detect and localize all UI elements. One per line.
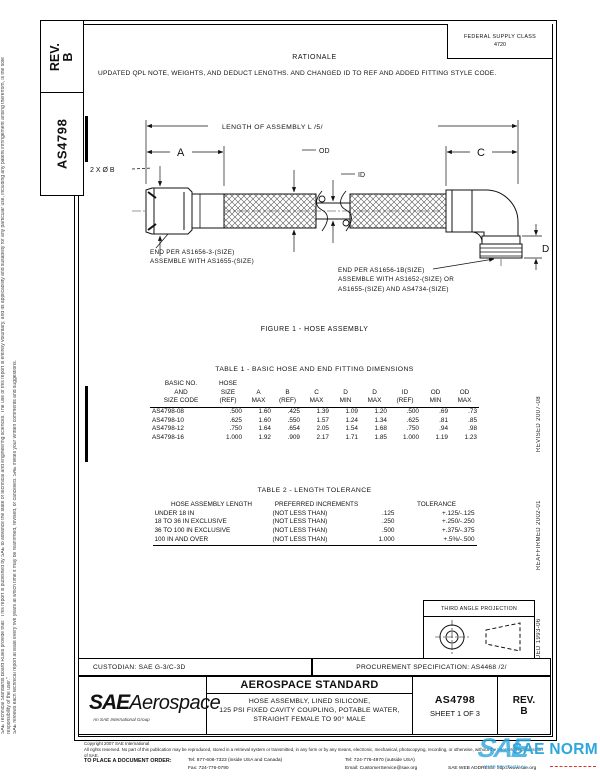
left-end-note: END PER AS1656-3-(SIZE) ASSEMBLE WITH AS… <box>150 248 340 267</box>
table-cell: (NOT LESS THAN) <box>271 518 363 527</box>
doc-number: AS4798 <box>435 694 475 706</box>
document-title: HOSE ASSEMBLY, LINED SILICONE, 125 PSI F… <box>207 694 412 725</box>
left-ferrule <box>192 194 224 228</box>
table-header-cell: SIZE <box>212 389 244 398</box>
reaffirmed-date: REAFFIRMED 2002-01 <box>536 460 542 570</box>
table-cell: .625 <box>212 417 244 426</box>
table-row: 100 IN AND OVER(NOT LESS THAN)1.000+.5%/… <box>153 536 477 546</box>
table-row: AS4798-08.5001.60.4251.391.091.20.500.69… <box>150 407 479 416</box>
table2-title: TABLE 2 - LENGTH TOLERANCE <box>78 487 551 494</box>
doc-number-cell: AS4798 SHEET 1 OF 3 <box>413 677 498 734</box>
table-header-cell: AND <box>150 389 212 398</box>
table-header-cell: MIN <box>331 397 360 407</box>
order-label: TO PLACE A DOCUMENT ORDER: <box>84 758 172 764</box>
table-header-cell: MAX <box>244 397 273 407</box>
rev-box-value: B <box>62 43 75 71</box>
copyright-line: Copyright 2007 SAE International <box>84 741 149 747</box>
table-cell: .81 <box>421 417 450 426</box>
table-header-cell: MAX <box>360 397 389 407</box>
table-row: AS4798-12.7501.64.6542.051.541.68.750.94… <box>150 425 479 434</box>
right-end-note: END PER AS1656-1B(SIZE) ASSEMBLE WITH AS… <box>338 266 543 294</box>
sae-logo-cell: SAEAerospace An SAE International Group <box>79 677 207 734</box>
table-cell: .654 <box>273 425 302 434</box>
table-cell: 1.60 <box>244 407 273 416</box>
logo-subtitle: An SAE International Group <box>93 717 150 722</box>
table-row: AS4798-161.0001.92.9092.171.711.851.0001… <box>150 434 479 443</box>
table-header-cell <box>360 380 389 389</box>
table-header-cell: D <box>331 389 360 398</box>
table-header-cell: (REF) <box>212 397 244 407</box>
watermark-red-rule <box>550 766 596 767</box>
table-header-cell: BASIC NO. <box>150 380 212 389</box>
table-cell: 1.23 <box>450 434 479 443</box>
custodian-cell: CUSTODIAN: SAE G-3/C-3D <box>78 658 312 676</box>
table-header-row: SIZE CODE(REF)MAX(REF)MAXMINMAX(REF)MINM… <box>150 397 479 407</box>
table-cell: 2.17 <box>302 434 331 443</box>
table-cell: 1.68 <box>360 425 389 434</box>
doc-number-side: AS4798 <box>55 119 69 170</box>
braided-hose-right <box>350 194 446 228</box>
table-header-cell: (REF) <box>273 397 302 407</box>
rationale-body: UPDATED QPL NOTE, WEIGHTS, AND DEDUCT LE… <box>98 69 544 78</box>
table-header-cell <box>421 380 450 389</box>
table-row: 18 TO 36 IN EXCLUSIVE(NOT LESS THAN).250… <box>153 518 477 527</box>
table1-title: TABLE 1 - BASIC HOSE AND END FITTING DIM… <box>78 366 551 373</box>
elbow-fitting <box>446 190 522 258</box>
table-cell: 1.60 <box>244 417 273 426</box>
left-note-leader <box>156 234 168 248</box>
table-cell: .85 <box>450 417 479 426</box>
email-address: Email: CustomerService@sae.org <box>345 766 417 771</box>
standard-type: AEROSPACE STANDARD <box>207 677 412 694</box>
table-row: AS4798-10.6251.60.5501.571.241.34.625.81… <box>150 417 479 426</box>
table-cell: .750 <box>389 425 421 434</box>
table-cell: +.250/-.250 <box>397 518 477 527</box>
table1: BASIC NO.HOSEANDSIZEABCDDIDODODSIZE CODE… <box>150 380 479 442</box>
table-header-cell <box>244 380 273 389</box>
dim-a-label: A <box>177 147 185 159</box>
figure-caption: FIGURE 1 - HOSE ASSEMBLY <box>78 326 551 333</box>
projection-box: THIRD ANGLE PROJECTION <box>423 600 535 660</box>
table-header-cell: D <box>360 389 389 398</box>
table-cell: UNDER 18 IN <box>153 510 271 519</box>
table-cell: 1.000 <box>389 434 421 443</box>
table-cell: AS4798-12 <box>150 425 212 434</box>
web-address: SAE WEB ADDRESS: http://www.sae.org <box>448 766 536 771</box>
table-cell: 1.64 <box>244 425 273 434</box>
table-cell: .550 <box>273 417 302 426</box>
fsc-box: FEDERAL SUPPLY CLASS 4720 <box>447 24 552 59</box>
table-cell: .909 <box>273 434 302 443</box>
table-header-cell: A <box>244 389 273 398</box>
table-cell: 100 IN AND OVER <box>153 536 271 546</box>
dim-d-label: D <box>542 244 549 255</box>
standard-title-cell: AEROSPACE STANDARD HOSE ASSEMBLY, LINED … <box>207 677 413 734</box>
table-cell: (NOT LESS THAN) <box>271 510 363 519</box>
table1-header: BASIC NO.HOSEANDSIZEABCDDIDODODSIZE CODE… <box>150 380 479 407</box>
dim-a-lines <box>147 146 224 186</box>
table2-header: HOSE ASSEMBLY LENGTHPREFERRED INCREMENTS… <box>153 501 477 510</box>
table-cell: 1.71 <box>331 434 360 443</box>
rev-box: REV. B <box>40 20 84 94</box>
table-cell: 1.20 <box>360 407 389 416</box>
document-page: { "page": { "margin_left_outer": "SAE Te… <box>0 0 600 776</box>
dim-c-label: C <box>477 147 485 159</box>
table-cell: .425 <box>273 407 302 416</box>
rev-cell-value: B <box>520 706 527 717</box>
table-cell: 2.05 <box>302 425 331 434</box>
table-header-row: ANDSIZEABCDDIDODOD <box>150 389 479 398</box>
table-cell: 1.09 <box>331 407 360 416</box>
table-cell: .125 <box>363 510 397 519</box>
table-cell: 1.39 <box>302 407 331 416</box>
table-header-cell: ID <box>389 389 421 398</box>
table-cell: .500 <box>389 407 421 416</box>
table-cell: +.375/-.375 <box>397 527 477 536</box>
doc-number-side-box: AS4798 <box>40 92 84 196</box>
dim-id-label: ID <box>358 172 365 179</box>
table-cell: .625 <box>389 417 421 426</box>
fax-number: Fax: 724-776-0790 <box>188 766 229 771</box>
table-cell: +.125/-.125 <box>397 510 477 519</box>
left-fitting-nut <box>146 188 192 234</box>
table2-body: UNDER 18 IN(NOT LESS THAN).125+.125/-.12… <box>153 510 477 546</box>
fsc-code: 4720 <box>494 42 506 48</box>
table-cell: .69 <box>421 407 450 416</box>
table-cell: .98 <box>450 425 479 434</box>
table-header-cell <box>389 380 421 389</box>
table-cell: 1.92 <box>244 434 273 443</box>
table-header-cell: MAX <box>302 397 331 407</box>
table-cell: 36 TO 100 IN EXCLUSIVE <box>153 527 271 536</box>
dim-od-label: OD <box>319 148 330 155</box>
custodian-text: CUSTODIAN: SAE G-3/C-3D <box>93 664 186 671</box>
table-cell: 1.000 <box>212 434 244 443</box>
table-header-row: HOSE ASSEMBLY LENGTHPREFERRED INCREMENTS… <box>153 501 477 510</box>
table-header-cell <box>450 380 479 389</box>
third-angle-projection-symbol <box>424 617 532 657</box>
procurement-cell: PROCUREMENT SPECIFICATION: AS4468 /2/ <box>312 658 551 676</box>
table-header-cell: OD <box>421 389 450 398</box>
projection-label: THIRD ANGLE PROJECTION <box>424 601 534 617</box>
dim-d-lines <box>522 224 542 270</box>
table-header-cell <box>273 380 302 389</box>
table-cell: .94 <box>421 425 450 434</box>
table-row: 36 TO 100 IN EXCLUSIVE(NOT LESS THAN).50… <box>153 527 477 536</box>
table-cell: .73 <box>450 407 479 416</box>
table-cell: 1.54 <box>331 425 360 434</box>
table-header-cell: B <box>273 389 302 398</box>
table-cell: .500 <box>363 527 397 536</box>
tel-inside: Tel: 877-606-7323 (inside USA and Canada… <box>188 758 282 763</box>
table-header-cell: HOSE <box>212 380 244 389</box>
table-cell: +.5%/-.500 <box>397 536 477 546</box>
title-block: SAEAerospace An SAE International Group … <box>78 676 551 735</box>
table-cell: 1.34 <box>360 417 389 426</box>
table-cell: 1.85 <box>360 434 389 443</box>
logo-sae-text: SAE <box>89 691 129 714</box>
sae-aerospace-logo: SAEAerospace <box>89 691 220 715</box>
table-cell: AS4798-08 <box>150 407 212 416</box>
fsc-title: FEDERAL SUPPLY CLASS <box>464 34 536 40</box>
table-cell: (NOT LESS THAN) <box>271 536 363 546</box>
length-dimension-label: LENGTH OF ASSEMBLY L /5/ <box>222 124 323 131</box>
braided-hose-left <box>224 194 316 228</box>
table-cell: .250 <box>363 518 397 527</box>
table-header-cell <box>302 380 331 389</box>
table2-wrap: HOSE ASSEMBLY LENGTHPREFERRED INCREMENTS… <box>78 501 551 546</box>
table2: HOSE ASSEMBLY LENGTHPREFERRED INCREMENTS… <box>153 501 477 546</box>
table-header-cell: PREFERRED INCREMENTS <box>271 501 363 510</box>
rev-cell-label: REV. <box>513 695 535 706</box>
table-header-cell <box>331 380 360 389</box>
left-margin-legal-text-outer: SAE Technical Standards Board Rules prov… <box>1 32 11 734</box>
table-header-row: BASIC NO.HOSE <box>150 380 479 389</box>
procurement-text: PROCUREMENT SPECIFICATION: AS4468 /2/ <box>356 664 506 671</box>
table-header-cell <box>363 501 397 510</box>
table-cell: 1.19 <box>421 434 450 443</box>
revised-date: REVISED 2007-08 <box>536 356 542 452</box>
tel-outside: Tel: 724-776-4970 (outside USA) <box>345 758 415 763</box>
table-cell: 1.24 <box>331 417 360 426</box>
table-header-cell: (REF) <box>389 397 421 407</box>
dim-b-label: 2 X Ø B <box>90 167 115 174</box>
table-cell: AS4798-16 <box>150 434 212 443</box>
table-header-cell: TOLERANCE <box>397 501 477 510</box>
table-cell: 1.000 <box>363 536 397 546</box>
left-margin-legal-text-inner: SAE reviews each technical report at lea… <box>13 32 23 734</box>
sheet-number: SHEET 1 OF 3 <box>430 709 480 718</box>
table1-wrap: BASIC NO.HOSEANDSIZEABCDDIDODODSIZE CODE… <box>78 380 551 442</box>
table-cell: 1.57 <box>302 417 331 426</box>
table1-body: AS4798-08.5001.60.4251.391.091.20.500.69… <box>150 407 479 442</box>
table-header-cell: OD <box>450 389 479 398</box>
table-header-cell: SIZE CODE <box>150 397 212 407</box>
table-header-cell: MIN <box>421 397 450 407</box>
table-cell: (NOT LESS THAN) <box>271 527 363 536</box>
table-header-cell: MAX <box>450 397 479 407</box>
rev-cell: REV. B <box>498 677 550 734</box>
table-cell: AS4798-10 <box>150 417 212 426</box>
table-cell: 18 TO 36 IN EXCLUSIVE <box>153 518 271 527</box>
table-cell: .750 <box>212 425 244 434</box>
table-row: UNDER 18 IN(NOT LESS THAN).125+.125/-.12… <box>153 510 477 519</box>
logo-aerospace-text: Aerospace <box>129 692 220 714</box>
table-header-cell: HOSE ASSEMBLY LENGTH <box>153 501 271 510</box>
table-cell: .500 <box>212 407 244 416</box>
table-header-cell: C <box>302 389 331 398</box>
